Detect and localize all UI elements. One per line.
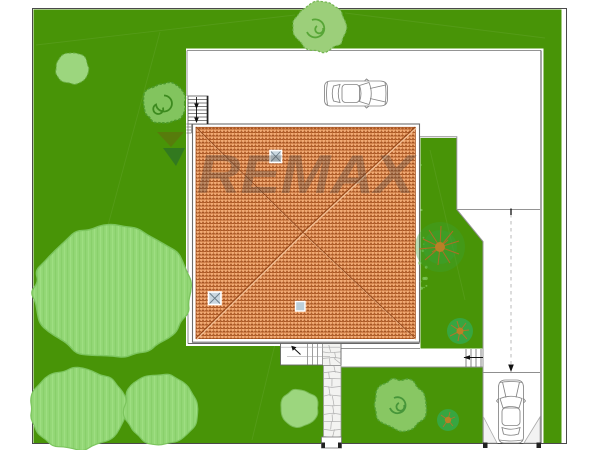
svg-text:REMAX: REMAX — [197, 143, 418, 205]
